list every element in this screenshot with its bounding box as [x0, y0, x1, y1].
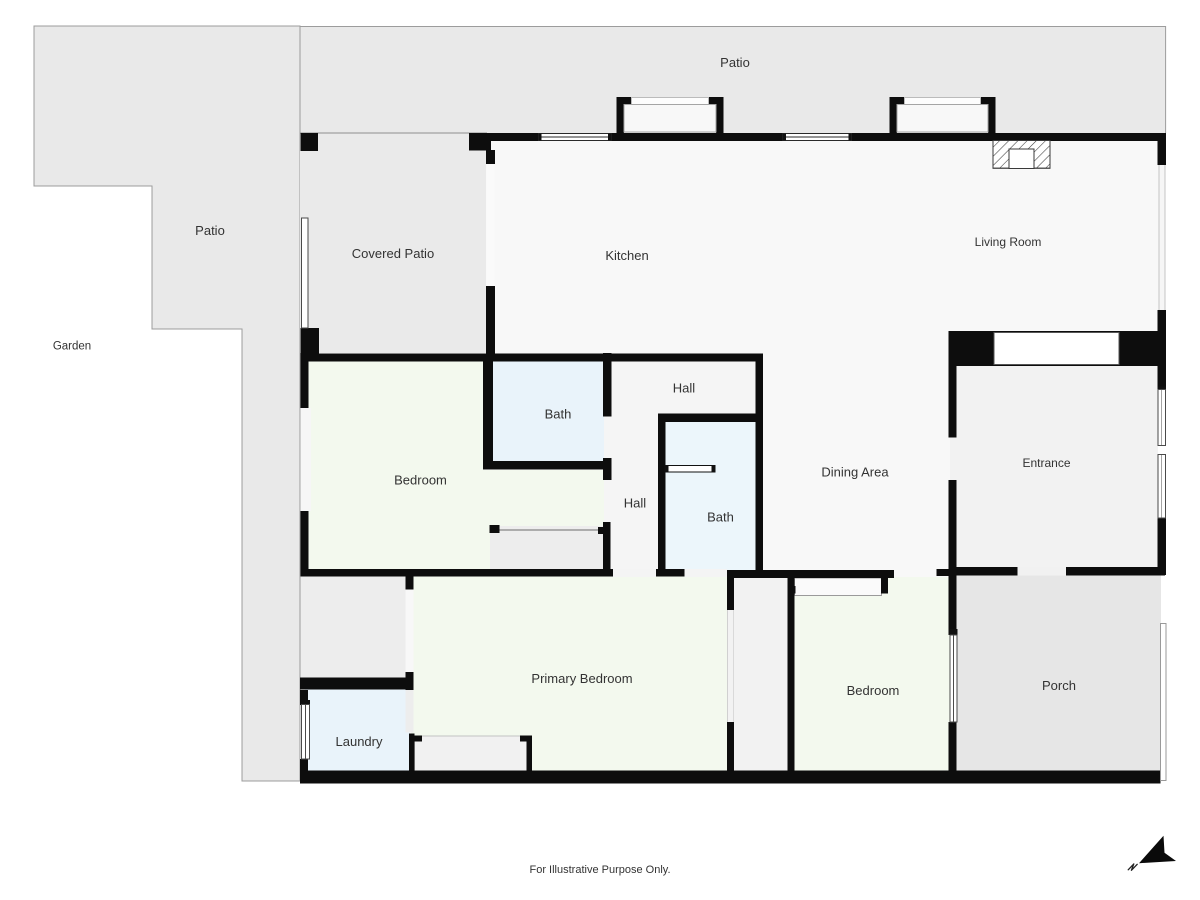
svg-text:For Illustrative Purpose Only.: For Illustrative Purpose Only.: [529, 864, 670, 876]
svg-text:Patio: Patio: [720, 55, 750, 70]
svg-text:Patio: Patio: [195, 223, 225, 238]
svg-text:Porch: Porch: [1042, 678, 1076, 693]
svg-text:Living Room: Living Room: [975, 235, 1042, 249]
svg-text:Hall: Hall: [624, 496, 647, 511]
svg-text:Garden: Garden: [53, 341, 91, 353]
svg-text:Dining Area: Dining Area: [821, 465, 889, 480]
svg-text:Bedroom: Bedroom: [847, 683, 900, 698]
svg-text:Bath: Bath: [545, 407, 572, 422]
svg-text:Bath: Bath: [707, 510, 734, 525]
svg-text:Primary Bedroom: Primary Bedroom: [531, 671, 632, 686]
svg-text:Kitchen: Kitchen: [605, 248, 648, 263]
svg-text:Entrance: Entrance: [1022, 456, 1070, 470]
svg-text:Laundry: Laundry: [336, 734, 383, 749]
svg-text:Covered Patio: Covered Patio: [352, 246, 434, 261]
svg-text:Bedroom: Bedroom: [394, 473, 447, 488]
svg-text:Hall: Hall: [673, 381, 696, 396]
